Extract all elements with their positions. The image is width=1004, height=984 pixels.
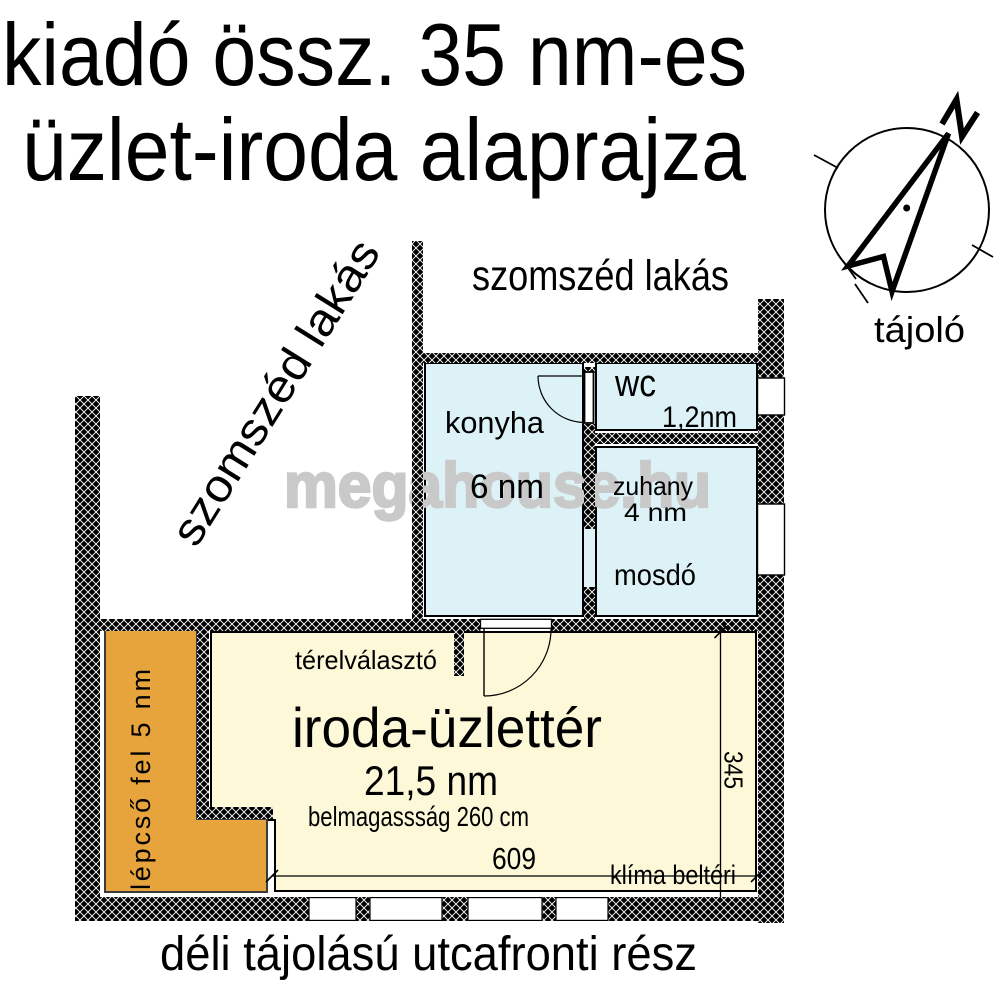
svg-text:21,5 nm: 21,5 nm xyxy=(364,757,498,804)
svg-text:térelválasztó: térelválasztó xyxy=(295,645,437,675)
svg-text:mosdó: mosdó xyxy=(614,559,696,592)
svg-text:déli tájolású utcafronti rész: déli tájolású utcafronti rész xyxy=(160,928,697,981)
svg-text:tájoló: tájoló xyxy=(874,309,965,350)
svg-text:szomszéd lakás: szomszéd lakás xyxy=(472,252,729,300)
svg-text:609: 609 xyxy=(492,841,536,876)
svg-text:4 nm: 4 nm xyxy=(624,499,687,527)
svg-text:1,2nm: 1,2nm xyxy=(662,401,737,434)
svg-text:kiadó össz. 35 nm-es: kiadó össz. 35 nm-es xyxy=(2,5,747,104)
svg-text:klíma beltéri: klíma beltéri xyxy=(610,860,736,890)
svg-text:wc: wc xyxy=(614,363,656,405)
svg-text:345: 345 xyxy=(719,751,749,789)
svg-text:üzlet-iroda alaprajza: üzlet-iroda alaprajza xyxy=(22,100,746,199)
svg-text:belmagassság 260 cm: belmagassság 260 cm xyxy=(308,801,529,832)
svg-text:lépcső fel 5 nm: lépcső fel 5 nm xyxy=(126,669,156,890)
svg-text:6 nm: 6 nm xyxy=(470,468,544,506)
svg-text:iroda-üzlettér: iroda-üzlettér xyxy=(292,696,602,759)
svg-text:konyha: konyha xyxy=(445,405,545,440)
svg-text:zuhany: zuhany xyxy=(613,471,693,501)
